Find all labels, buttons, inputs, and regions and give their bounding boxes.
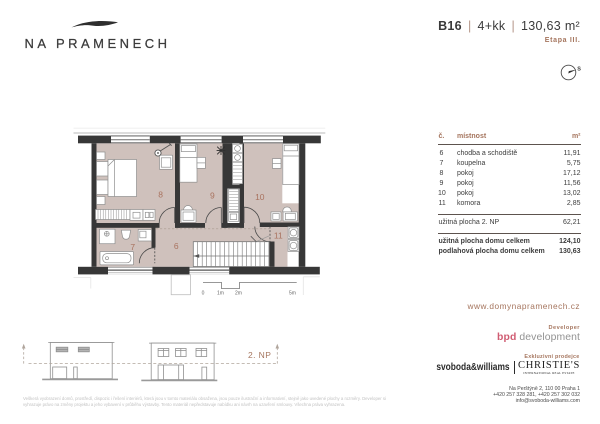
svg-text:5m: 5m <box>289 291 296 297</box>
svg-text:6: 6 <box>174 241 179 251</box>
svg-text:1m: 1m <box>217 291 224 297</box>
svg-text:0: 0 <box>202 291 205 297</box>
svg-text:8: 8 <box>158 190 163 200</box>
svg-text:7: 7 <box>130 242 135 252</box>
svg-text:2m: 2m <box>235 291 242 297</box>
svg-text:10: 10 <box>255 192 265 202</box>
svg-text:9: 9 <box>210 191 215 201</box>
svg-text:11: 11 <box>274 231 283 241</box>
